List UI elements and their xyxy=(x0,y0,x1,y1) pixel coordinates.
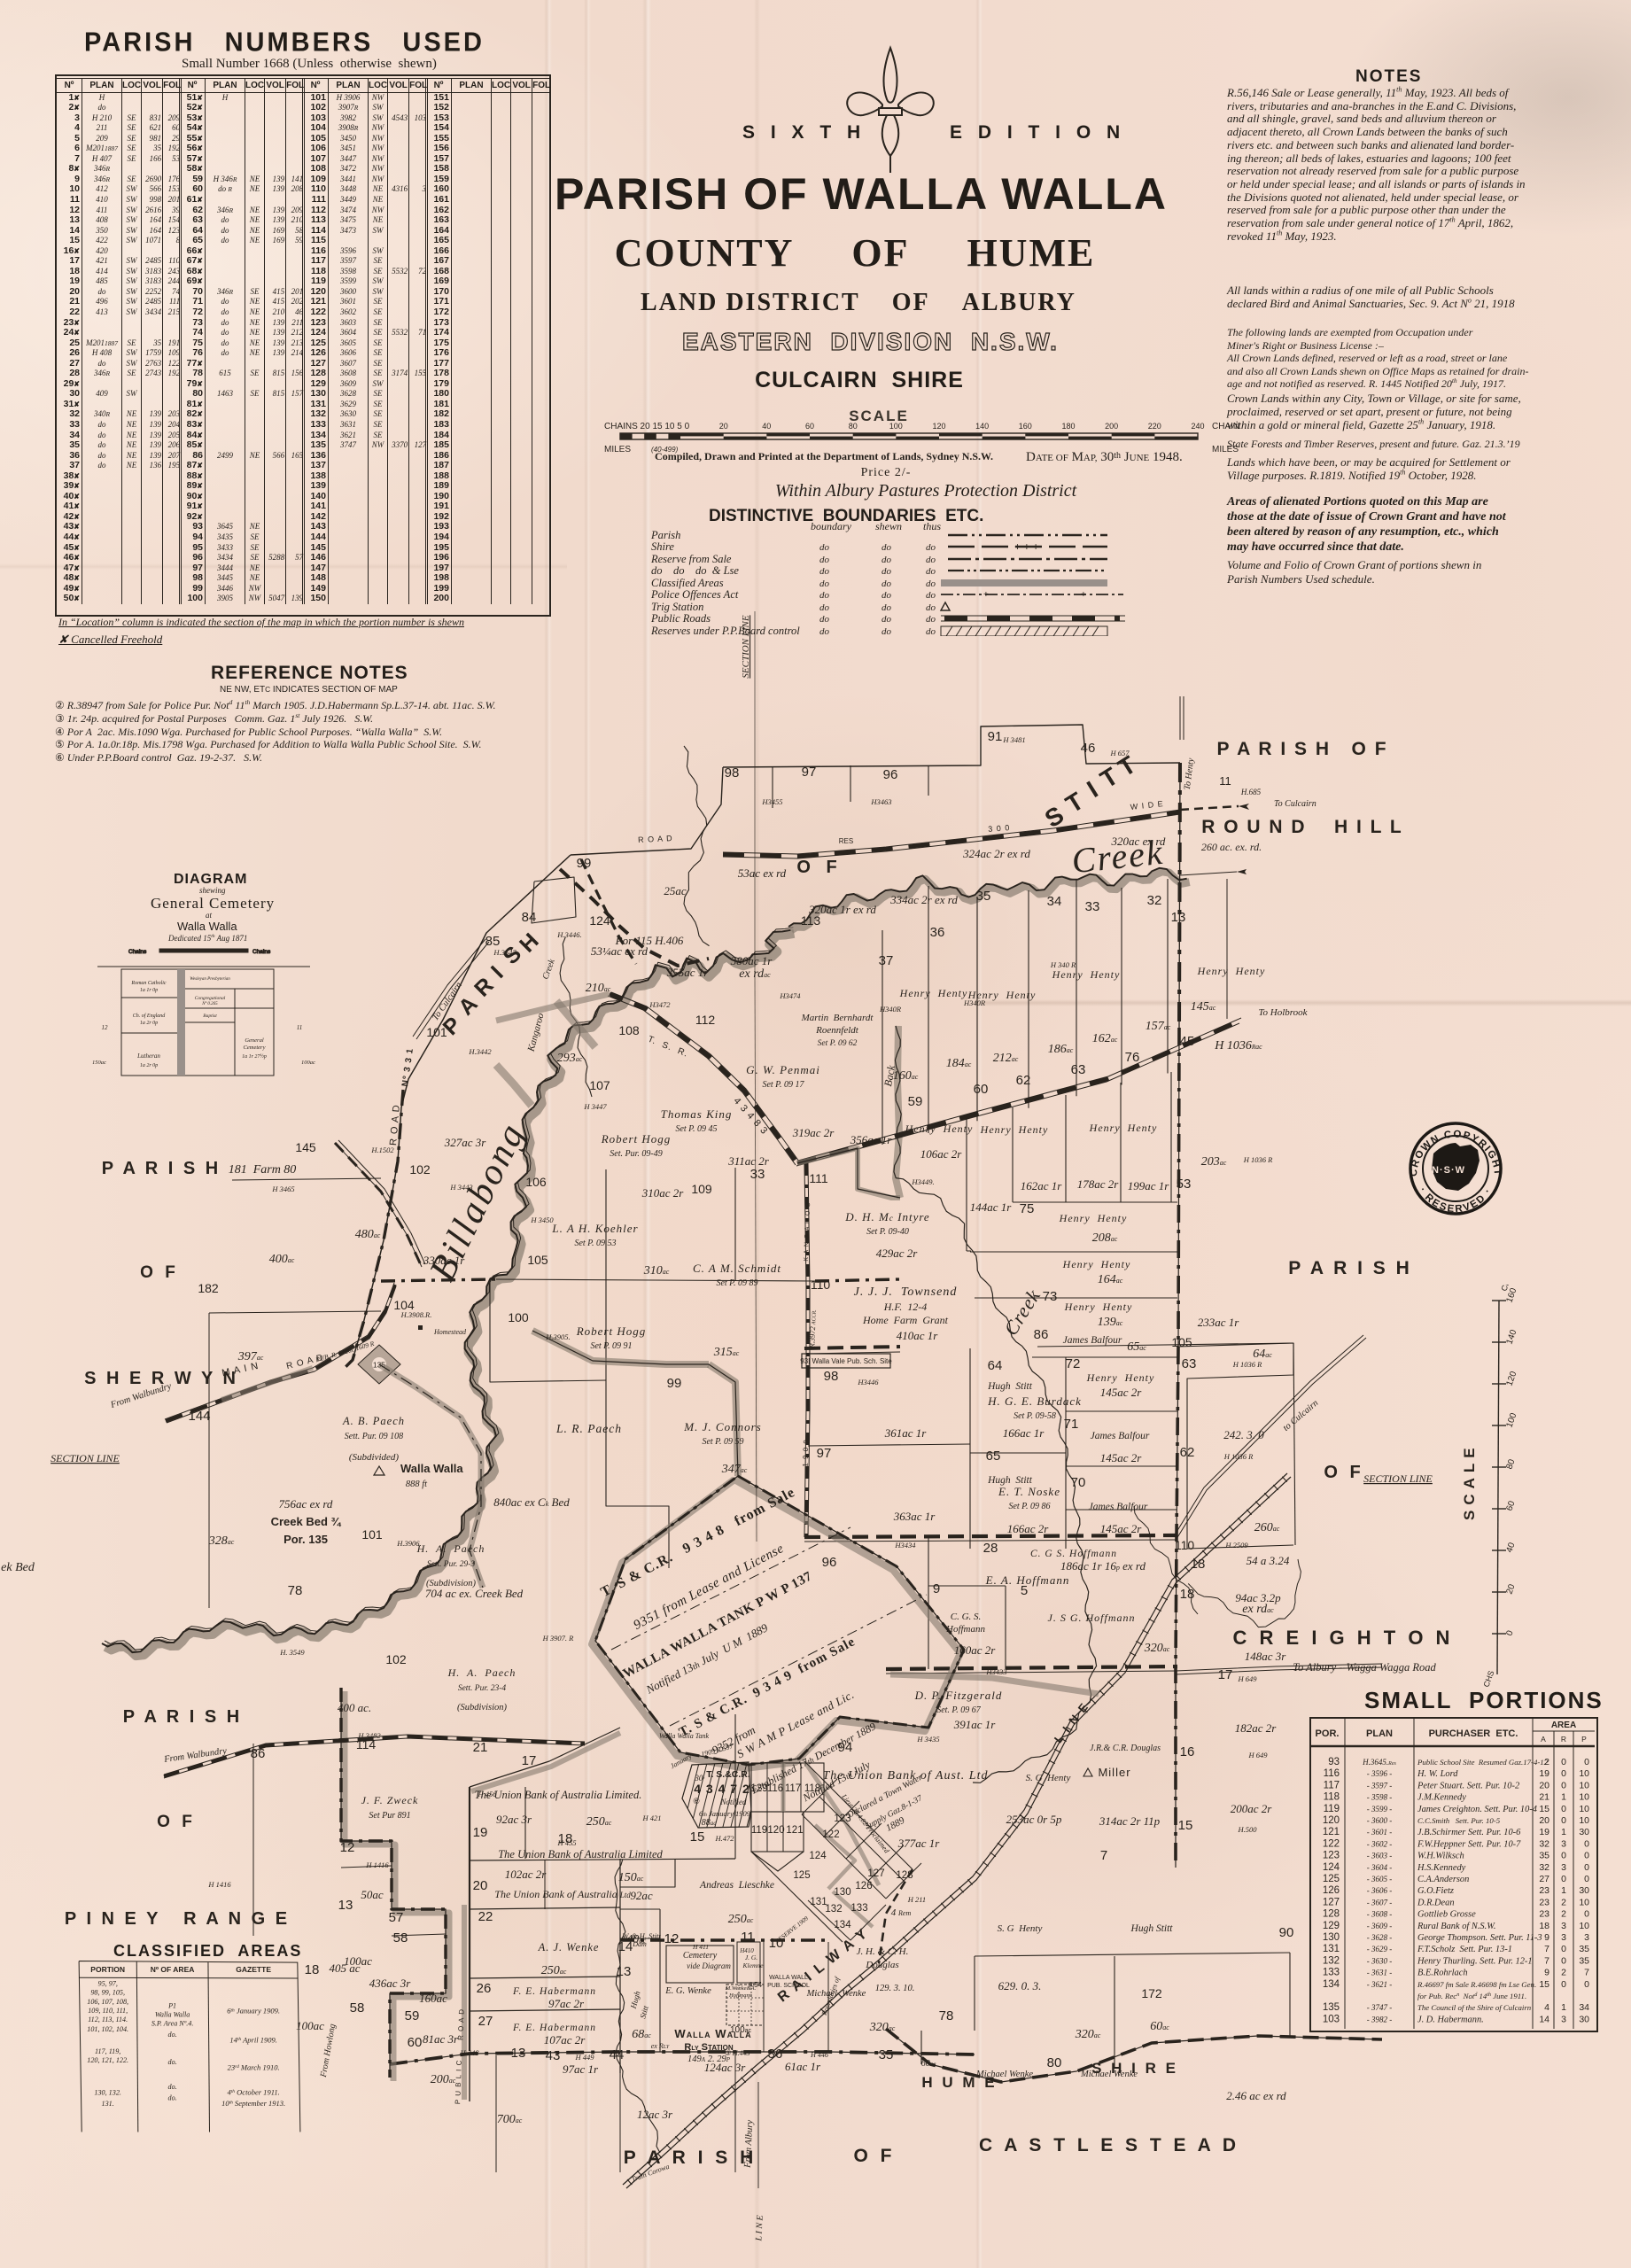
svg-text:S. G Henty: S. G Henty xyxy=(998,1923,1043,1934)
svg-text:233ac 1r: 233ac 1r xyxy=(1198,1316,1240,1329)
svg-text:Set P. 09 45: Set P. 09 45 xyxy=(675,1124,717,1134)
svg-text:166ac 1r: 166ac 1r xyxy=(1003,1426,1045,1440)
svg-text:25ac: 25ac xyxy=(664,884,687,897)
svg-text:96: 96 xyxy=(883,767,898,782)
svg-text:P A R I S H: P A R I S H xyxy=(1288,1258,1412,1278)
svg-text:840ac ex Ck Bed: 840ac ex Ck Bed xyxy=(493,1495,570,1509)
svg-text:H 649: H 649 xyxy=(1247,1751,1268,1759)
svg-text:M. J. Connors: M. J. Connors xyxy=(683,1420,761,1433)
svg-text:182ac 2r: 182ac 2r xyxy=(1235,1721,1278,1735)
svg-text:Douglas: Douglas xyxy=(865,1960,898,1970)
svg-text:H.F. 12-4: H.F. 12-4 xyxy=(883,1301,927,1313)
svg-text:L. A H. Koehler: L. A H. Koehler xyxy=(551,1222,638,1235)
svg-text:58: 58 xyxy=(350,2000,365,2016)
svg-text:12ac 3r: 12ac 3r xyxy=(637,2108,673,2121)
svg-text:Henry Henty: Henry Henty xyxy=(1062,1258,1131,1270)
svg-text:The Union Bank of Australia Lt: The Union Bank of Australia Ltd xyxy=(494,1888,631,1900)
svg-text:13: 13 xyxy=(617,1964,632,1979)
svg-text:110: 110 xyxy=(1175,1538,1195,1552)
svg-text:184ac: 184ac xyxy=(946,1057,972,1070)
svg-text:Henry Henty: Henry Henty xyxy=(1052,968,1121,981)
svg-text:Set Pur 891: Set Pur 891 xyxy=(369,1811,410,1821)
svg-text:76: 76 xyxy=(1125,1050,1140,1065)
svg-text:200ac: 200ac xyxy=(431,2073,456,2086)
svg-text:186ac: 186ac xyxy=(1048,1043,1074,1056)
svg-text:J. S G. Hoffmann: J. S G. Hoffmann xyxy=(1048,1612,1136,1624)
svg-text:A. B. Paech: A. B. Paech xyxy=(342,1415,405,1427)
svg-text:400ac: 400ac xyxy=(269,1253,295,1266)
svg-text:334ac 2r ex rd: 334ac 2r ex rd xyxy=(889,893,958,906)
svg-text:Set. Pur. 09-49: Set. Pur. 09-49 xyxy=(610,1149,662,1159)
svg-text:Klemne: Klemne xyxy=(742,1961,765,1969)
svg-text:181 Farm 80: 181 Farm 80 xyxy=(229,1163,297,1177)
svg-text:Sett. Pur. 29-3: Sett. Pur. 29-3 xyxy=(427,1560,476,1569)
svg-text:H3449.: H3449. xyxy=(911,1177,934,1186)
svg-text:The Union Bank of Australia Li: The Union Bank of Australia Limited. xyxy=(475,1789,642,1801)
svg-text:102ac 2r: 102ac 2r xyxy=(505,1868,548,1881)
svg-text:629. 0. 3.: 629. 0. 3. xyxy=(998,1979,1042,1992)
svg-text:102: 102 xyxy=(409,1162,431,1177)
svg-text:18: 18 xyxy=(1180,1587,1195,1602)
svg-text:T. S.&C.R.: T. S.&C.R. xyxy=(706,1769,750,1780)
svg-text:320ac 1r ex rd: 320ac 1r ex rd xyxy=(808,903,876,916)
svg-text:73: 73 xyxy=(1043,1289,1058,1304)
svg-text:64: 64 xyxy=(988,1358,1003,1373)
svg-text:Hoffmann: Hoffmann xyxy=(728,1992,752,1999)
svg-text:C A S T L E S T E A D: C A S T L E S T E A D xyxy=(979,2135,1239,2155)
svg-text:19: 19 xyxy=(473,1825,488,1840)
svg-text:53ac ex rd: 53ac ex rd xyxy=(738,866,787,880)
svg-text:H. 3549: H. 3549 xyxy=(279,1648,305,1657)
svg-text:18: 18 xyxy=(1191,1557,1206,1572)
svg-text:94: 94 xyxy=(838,1740,853,1755)
svg-text:90: 90 xyxy=(1279,1925,1294,1940)
svg-text:400 ac.: 400 ac. xyxy=(338,1701,371,1714)
svg-text:O F: O F xyxy=(854,2146,896,2166)
svg-text:Henry Henty: Henry Henty xyxy=(899,987,968,999)
svg-text:162ac: 162ac xyxy=(1092,1032,1118,1045)
svg-text:60ac: 60ac xyxy=(921,2059,937,2069)
svg-text:11: 11 xyxy=(1219,774,1231,788)
svg-text:45: 45 xyxy=(1180,1034,1195,1049)
svg-text:99: 99 xyxy=(667,1376,682,1391)
svg-text:242. 3. 0: 242. 3. 0 xyxy=(1223,1428,1264,1441)
svg-text:106ac 2r: 106ac 2r xyxy=(920,1147,963,1161)
svg-text:63: 63 xyxy=(1182,1356,1197,1371)
svg-text:63: 63 xyxy=(1071,1062,1086,1077)
svg-text:324ac 2r ex rd: 324ac 2r ex rd xyxy=(962,847,1030,860)
svg-text:186ac 1r 16p ex rd: 186ac 1r 16p ex rd xyxy=(1060,1559,1146,1573)
svg-text:Set. P. 09 67: Set. P. 09 67 xyxy=(936,1705,982,1715)
svg-text:H3433: H3433 xyxy=(985,1667,1006,1676)
svg-text:33: 33 xyxy=(1085,899,1100,914)
svg-text:27: 27 xyxy=(478,2014,493,2029)
svg-text:Homestead: Homestead xyxy=(433,1328,467,1336)
svg-text:I: I xyxy=(1082,776,1102,803)
svg-text:13: 13 xyxy=(511,2046,526,2061)
svg-text:Set P. 09 59: Set P. 09 59 xyxy=(702,1437,743,1447)
svg-text:122: 122 xyxy=(822,1829,839,1840)
svg-text:H.3446.: H.3446. xyxy=(556,930,581,939)
svg-text:253ac 0r 5p: 253ac 0r 5p xyxy=(1006,1813,1062,1826)
svg-text:33: 33 xyxy=(750,1167,765,1182)
svg-text:J. J. J. Townsend: J. J. J. Townsend xyxy=(854,1285,958,1299)
svg-text:92ac 3r: 92ac 3r xyxy=(496,1813,532,1826)
svg-text:65ac: 65ac xyxy=(1127,1340,1146,1354)
svg-text:260ac: 260ac xyxy=(1254,1521,1280,1534)
svg-text:Hugh Stitt: Hugh Stitt xyxy=(1130,1923,1174,1934)
svg-text:H3434: H3434 xyxy=(894,1541,916,1550)
svg-text:53¼ac ex rd: 53¼ac ex rd xyxy=(591,944,649,958)
svg-text:H 1036 R: H 1036 R xyxy=(1232,1360,1262,1369)
svg-text:123: 123 xyxy=(834,1814,850,1824)
svg-text:145ac 2r: 145ac 2r xyxy=(1100,1451,1143,1464)
svg-text:Henry Henty: Henry Henty xyxy=(1086,1371,1155,1384)
svg-text:Set P. 09 91: Set P. 09 91 xyxy=(590,1341,632,1351)
svg-text:James Balfour: James Balfour xyxy=(1089,1502,1148,1512)
svg-text:A. J. Wenke: A. J. Wenke xyxy=(538,1941,600,1953)
svg-text:391ac 1r: 391ac 1r xyxy=(953,1718,997,1731)
svg-text:111: 111 xyxy=(809,1171,827,1185)
svg-text:34: 34 xyxy=(1047,894,1062,909)
svg-text:Home Farm Grant: Home Farm Grant xyxy=(862,1314,949,1326)
svg-text:H3472: H3472 xyxy=(649,1000,671,1009)
svg-text:J.R.& C.R. Douglas: J.R.& C.R. Douglas xyxy=(1090,1744,1161,1753)
svg-text:(Subdivision): (Subdivision) xyxy=(457,1703,507,1713)
svg-text:128: 128 xyxy=(896,1870,913,1881)
svg-text:125: 125 xyxy=(793,1870,810,1881)
svg-text:134: 134 xyxy=(834,1920,851,1930)
svg-text:ek Bed: ek Bed xyxy=(1,1561,35,1574)
svg-text:Roennfeldt: Roennfeldt xyxy=(815,1025,859,1036)
svg-text:756ac ex rd: 756ac ex rd xyxy=(279,1497,333,1511)
svg-text:18: 18 xyxy=(305,1962,320,1977)
svg-text:Kangaroo: Kangaroo xyxy=(525,1012,546,1053)
svg-text:13: 13 xyxy=(338,1898,353,1913)
svg-text:320ac ex rd: 320ac ex rd xyxy=(1111,835,1166,848)
svg-text:144: 144 xyxy=(188,1409,210,1424)
svg-text:361ac 1r: 361ac 1r xyxy=(884,1426,928,1440)
svg-text:46: 46 xyxy=(1081,741,1096,756)
svg-text:H 421: H 421 xyxy=(641,1814,661,1822)
svg-text:62: 62 xyxy=(1016,1073,1031,1088)
svg-text:97: 97 xyxy=(817,1446,832,1461)
svg-text:H 1416: H 1416 xyxy=(365,1860,389,1869)
svg-text:57: 57 xyxy=(389,1910,404,1925)
svg-text:199ac 1r: 199ac 1r xyxy=(1128,1179,1170,1192)
svg-text:320ac: 320ac xyxy=(1075,2028,1101,2041)
svg-text:127: 127 xyxy=(867,1868,884,1879)
svg-text:35: 35 xyxy=(879,2047,894,2062)
svg-text:③ H.443: ③ H.443 xyxy=(725,2049,750,2057)
svg-text:R O A D: R O A D xyxy=(638,834,673,844)
svg-text:9: 9 xyxy=(933,1581,940,1596)
svg-text:3 0 0: 3 0 0 xyxy=(988,823,1011,834)
svg-text:D. P. Fitzgerald: D. P. Fitzgerald xyxy=(914,1689,1003,1702)
svg-text:410ac 1r: 410ac 1r xyxy=(897,1329,939,1342)
svg-text:Robert Hogg: Robert Hogg xyxy=(576,1324,647,1338)
svg-text:Andreas Lieschke: Andreas Lieschke xyxy=(699,1880,774,1891)
svg-text:330ac 1r: 330ac 1r xyxy=(423,1254,466,1267)
svg-text:208ac: 208ac xyxy=(1092,1231,1118,1245)
svg-text:H. G. E. Burdack: H. G. E. Burdack xyxy=(987,1394,1082,1408)
svg-text:H 649: H 649 xyxy=(1237,1674,1257,1683)
svg-text:21: 21 xyxy=(473,1740,488,1755)
svg-text:RES: RES xyxy=(839,837,853,845)
svg-text:Set P. 09 53: Set P. 09 53 xyxy=(574,1239,616,1248)
svg-text:97: 97 xyxy=(802,765,817,780)
svg-text:I: I xyxy=(486,961,509,983)
svg-text:Michael Wenke: Michael Wenke xyxy=(975,2070,1033,2079)
svg-text:ex rdac: ex rdac xyxy=(739,967,771,981)
svg-text:260 ac. ex. rd.: 260 ac. ex. rd. xyxy=(1201,841,1262,853)
svg-text:R O A D: R O A D xyxy=(388,1104,402,1146)
svg-text:480ac: 480ac xyxy=(355,1228,381,1241)
svg-text:Set P. 09 62: Set P. 09 62 xyxy=(818,1039,858,1048)
svg-text:124: 124 xyxy=(589,913,610,928)
svg-text:6th January 1909: 6th January 1909 xyxy=(699,1809,751,1818)
svg-text:Hugh: Hugh xyxy=(628,1990,641,2010)
svg-text:J. G.: J. G. xyxy=(745,1953,757,1961)
svg-text:P A R I S H O F: P A R I S H O F xyxy=(1216,739,1387,759)
svg-text:145ac: 145ac xyxy=(1191,1000,1216,1014)
svg-text:H 449: H 449 xyxy=(574,2053,594,2062)
svg-text:L I N E: L I N E xyxy=(1052,1699,1091,1745)
svg-text:J. F. Zweck: J. F. Zweck xyxy=(361,1794,419,1806)
svg-text:101: 101 xyxy=(361,1527,383,1542)
svg-text:Henry Henty: Henry Henty xyxy=(1064,1301,1133,1313)
svg-text:H.685: H.685 xyxy=(1240,788,1262,796)
svg-text:210ac: 210ac xyxy=(586,982,611,995)
svg-text:Set P. 09 17: Set P. 09 17 xyxy=(762,1080,804,1090)
svg-text:347ac: 347ac xyxy=(721,1463,748,1476)
svg-text:H 3447: H 3447 xyxy=(583,1102,607,1111)
svg-text:H 3443: H 3443 xyxy=(449,1183,472,1192)
svg-text:43: 43 xyxy=(546,2048,561,2063)
svg-text:(Subdivided): (Subdivided) xyxy=(349,1452,400,1463)
svg-text:Set P. 09-40: Set P. 09-40 xyxy=(866,1227,909,1237)
svg-text:160ac: 160ac xyxy=(419,1992,447,2005)
svg-text:H 211: H 211 xyxy=(907,1895,926,1904)
svg-text:105: 105 xyxy=(527,1253,548,1267)
svg-text:H 340 R: H 340 R xyxy=(1050,960,1076,969)
svg-text:314ac 2r 11p: 314ac 2r 11p xyxy=(1099,1814,1161,1828)
svg-text:203ac: 203ac xyxy=(1201,1155,1227,1169)
svg-text:Creek Bed ¾: Creek Bed ¾ xyxy=(271,1515,342,1528)
svg-text:H410: H410 xyxy=(739,1947,754,1954)
svg-text:139ac: 139ac xyxy=(1098,1316,1123,1329)
svg-text:9351 from Lease and License: 9351 from Lease and License xyxy=(632,1542,787,1633)
svg-text:178ac 2r: 178ac 2r xyxy=(1077,1177,1120,1191)
svg-text:S. G Henty: S. G Henty xyxy=(1026,1773,1071,1783)
svg-text:328ac: 328ac xyxy=(208,1534,235,1548)
svg-text:118: 118 xyxy=(804,1783,820,1794)
svg-text:16: 16 xyxy=(1180,1744,1195,1759)
svg-text:26: 26 xyxy=(477,1981,492,1996)
svg-text:H3446: H3446 xyxy=(857,1378,879,1386)
svg-text:4 3 4 7 2: 4 3 4 7 2 xyxy=(694,1782,750,1796)
svg-text:53: 53 xyxy=(1177,1177,1192,1192)
svg-text:7: 7 xyxy=(1100,1848,1107,1863)
svg-text:60: 60 xyxy=(974,1082,989,1097)
svg-text:H.500: H.500 xyxy=(1237,1825,1257,1834)
svg-text:H 448: H 448 xyxy=(459,2048,479,2057)
svg-text:G. W. Penmai: G. W. Penmai xyxy=(746,1063,820,1076)
svg-text:110: 110 xyxy=(811,1278,831,1292)
svg-text:436ac 3r: 436ac 3r xyxy=(369,1977,412,1990)
svg-text:80: 80 xyxy=(1047,2055,1062,2070)
svg-text:H 3481: H 3481 xyxy=(1002,735,1025,744)
svg-text:C. G. S.: C. G. S. xyxy=(951,1612,982,1622)
svg-text:105: 105 xyxy=(1171,1335,1192,1349)
svg-text:119: 119 xyxy=(751,1825,767,1836)
svg-text:112: 112 xyxy=(695,1013,716,1027)
svg-text:Por. 135: Por. 135 xyxy=(283,1533,328,1546)
svg-text:R.3972 ACCR.: R.3972 ACCR. xyxy=(807,1309,818,1349)
svg-text:H3474: H3474 xyxy=(779,991,801,1000)
svg-text:60ac: 60ac xyxy=(1150,2020,1169,2033)
svg-text:P I N E Y R A N G E: P I N E Y R A N G E xyxy=(65,1909,290,1929)
svg-text:78: 78 xyxy=(288,1583,303,1598)
svg-text:H340R: H340R xyxy=(963,998,986,1007)
svg-text:58: 58 xyxy=(393,1930,408,1946)
svg-text:157ac: 157ac xyxy=(1146,1020,1171,1033)
svg-text:H 411: H 411 xyxy=(692,1943,709,1951)
svg-text:C R E I G H T O N: C R E I G H T O N xyxy=(1233,1627,1454,1649)
svg-text:145ac 2r: 145ac 2r xyxy=(1100,1386,1143,1399)
svg-text:35: 35 xyxy=(976,889,991,904)
svg-text:SECTION LINE: SECTION LINE xyxy=(1363,1472,1433,1485)
svg-text:H3463: H3463 xyxy=(870,797,891,806)
svg-text:Henry Henty: Henry Henty xyxy=(980,1123,1049,1136)
svg-text:117: 117 xyxy=(785,1783,801,1794)
svg-text:To Holbrook: To Holbrook xyxy=(1258,1007,1308,1018)
svg-text:700ac: 700ac xyxy=(497,2113,523,2126)
svg-text:Set P. 09 89: Set P. 09 89 xyxy=(716,1278,757,1288)
svg-text:H.472: H.472 xyxy=(714,1834,734,1843)
svg-text:Notified: Notified xyxy=(720,1798,747,1806)
svg-text:H. A. Paech: H. A. Paech xyxy=(447,1666,516,1679)
svg-text:88ac: 88ac xyxy=(702,1818,718,1828)
svg-text:12: 12 xyxy=(340,1840,355,1855)
svg-text:32: 32 xyxy=(1147,893,1162,908)
svg-text:H 3450: H 3450 xyxy=(530,1216,554,1224)
svg-text:O F: O F xyxy=(157,1813,196,1831)
svg-text:SECTION LINE: SECTION LINE xyxy=(741,615,751,678)
svg-text:H 1036 R: H 1036 R xyxy=(1243,1155,1273,1164)
svg-text:20: 20 xyxy=(473,1878,488,1893)
svg-text:L. R. Paech: L. R. Paech xyxy=(555,1422,622,1435)
svg-text:162ac 1r: 162ac 1r xyxy=(1021,1179,1063,1192)
svg-text:98: 98 xyxy=(725,765,740,781)
svg-text:Walla Walla Tank: Walla Walla Tank xyxy=(659,1732,709,1740)
svg-text:Nº 3 3 1: Nº 3 3 1 xyxy=(400,1047,416,1087)
svg-text:92ac: 92ac xyxy=(630,1889,653,1902)
svg-text:ex RLY: ex RLY xyxy=(651,2042,670,2050)
svg-text:James Balfour: James Balfour xyxy=(1091,1431,1150,1441)
svg-text:100ac: 100ac xyxy=(344,1954,372,1968)
svg-text:363ac 1r: 363ac 1r xyxy=(893,1510,936,1523)
svg-text:250ac: 250ac xyxy=(586,1815,612,1829)
svg-text:P A R I S H: P A R I S H xyxy=(123,1707,243,1727)
svg-text:64ac: 64ac xyxy=(1253,1348,1272,1361)
svg-text:124ac 3r: 124ac 3r xyxy=(704,2061,747,2074)
svg-text:121: 121 xyxy=(786,1825,803,1836)
svg-text:380ac 1r: 380ac 1r xyxy=(730,954,773,967)
svg-text:164ac: 164ac xyxy=(1098,1273,1123,1286)
svg-text:99: 99 xyxy=(577,856,592,871)
svg-text:78: 78 xyxy=(939,2008,954,2023)
svg-text:PUB. SCHOOL: PUB. SCHOOL xyxy=(767,1983,810,1989)
svg-text:H 3465: H 3465 xyxy=(271,1184,294,1193)
svg-text:133: 133 xyxy=(850,1903,867,1914)
svg-text:315ac: 315ac xyxy=(713,1346,740,1359)
svg-text:Cemetery: Cemetery xyxy=(683,1951,718,1961)
svg-text:F. E. Habermann: F. E. Habermann xyxy=(512,1986,596,1997)
svg-text:124: 124 xyxy=(809,1851,827,1861)
svg-text:H. A. Paech: H. A. Paech xyxy=(416,1542,485,1555)
svg-text:102: 102 xyxy=(385,1652,407,1666)
svg-text:H.3905.: H.3905. xyxy=(545,1332,570,1341)
svg-text:86: 86 xyxy=(1034,1327,1049,1342)
svg-text:C. G S. Hoffmann: C. G S. Hoffmann xyxy=(1030,1549,1117,1559)
svg-text:P A R I S H: P A R I S H xyxy=(102,1159,221,1178)
svg-text:107ac 2r: 107ac 2r xyxy=(544,2033,586,2047)
svg-text:12: 12 xyxy=(664,1931,680,1946)
svg-text:22: 22 xyxy=(478,1909,493,1924)
svg-text:Walla Walla: Walla Walla xyxy=(400,1462,463,1475)
svg-text:D. H. Mc Intyre: D. H. Mc Intyre xyxy=(844,1210,929,1223)
svg-text:81ac 3r: 81ac 3r xyxy=(423,2032,459,2046)
svg-text:200ac 2r: 200ac 2r xyxy=(1231,1802,1273,1815)
svg-text:65: 65 xyxy=(986,1449,1001,1464)
svg-text:E. T. Noske: E. T. Noske xyxy=(998,1485,1060,1498)
svg-text:130: 130 xyxy=(834,1887,850,1898)
svg-text:96: 96 xyxy=(822,1555,837,1570)
svg-text:H.3908.R.: H.3908.R. xyxy=(400,1310,432,1319)
svg-text:86: 86 xyxy=(251,1746,266,1761)
svg-text:To Culcairn: To Culcairn xyxy=(1274,799,1316,809)
svg-text:ex rdac: ex rdac xyxy=(1242,1603,1274,1616)
svg-text:91: 91 xyxy=(988,729,1003,744)
svg-text:H.3547: H.3547 xyxy=(493,948,516,957)
svg-text:319ac 2r: 319ac 2r xyxy=(792,1126,835,1139)
svg-text:355ac 1r: 355ac 1r xyxy=(666,966,710,979)
svg-text:T. S & C.R. 9 3 4 8 from S: T. S & C.R. 9 3 4 8 from Sale xyxy=(598,1485,797,1600)
svg-text:15: 15 xyxy=(1178,1818,1193,1833)
svg-text:H 1036 R: H 1036 R xyxy=(1223,1452,1254,1461)
svg-text:888 ft: 888 ft xyxy=(406,1480,428,1489)
svg-text:97ac 2r: 97ac 2r xyxy=(548,1997,585,2010)
svg-text:James Balfour: James Balfour xyxy=(1063,1335,1122,1346)
svg-text:71: 71 xyxy=(1064,1417,1079,1432)
svg-text:Miller: Miller xyxy=(1098,1766,1130,1779)
svg-text:310ac 2r: 310ac 2r xyxy=(641,1186,685,1200)
svg-text:150ac: 150ac xyxy=(618,1871,644,1884)
svg-text:Henry Henty: Henry Henty xyxy=(905,1122,974,1135)
svg-text:H 3907. R: H 3907. R xyxy=(542,1634,575,1643)
svg-text:11: 11 xyxy=(741,1930,755,1945)
svg-text:H 456: H 456 xyxy=(477,1790,497,1798)
svg-text:160ac: 160ac xyxy=(893,1069,919,1083)
svg-text:O F: O F xyxy=(1324,1463,1363,1482)
svg-text:H 1416: H 1416 xyxy=(207,1880,231,1889)
svg-text:Henry Henty: Henry Henty xyxy=(1197,965,1266,977)
svg-text:The Union Bank of Aust. Ltd: The Union Bank of Aust. Ltd xyxy=(823,1769,989,1783)
svg-text:145: 145 xyxy=(295,1140,316,1154)
svg-text:W I D E: W I D E xyxy=(1130,799,1164,812)
svg-text:377ac 1r: 377ac 1r xyxy=(897,1837,941,1850)
